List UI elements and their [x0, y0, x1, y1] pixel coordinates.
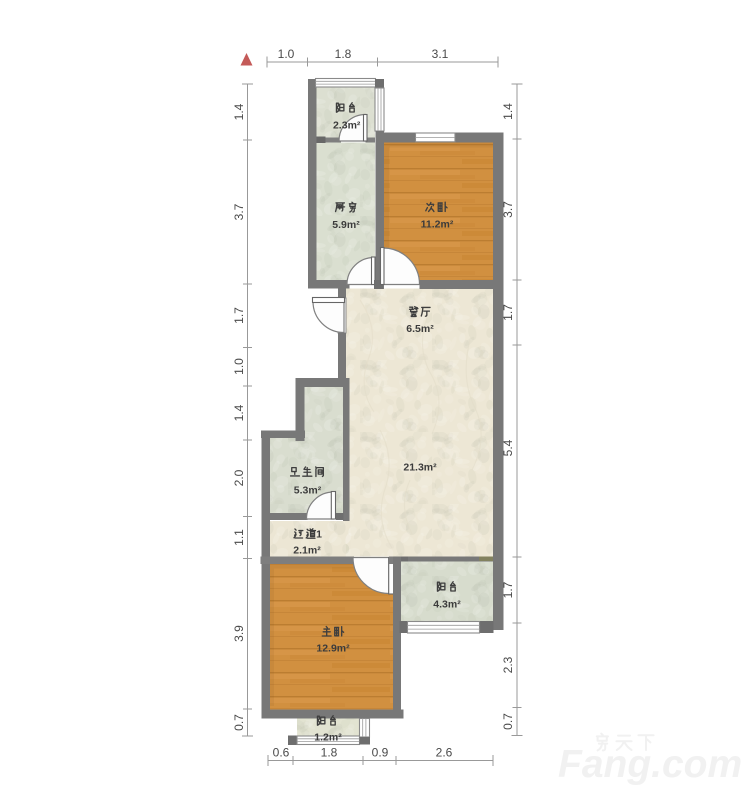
svg-text:5.4: 5.4: [501, 439, 515, 456]
svg-text:2.1m²: 2.1m²: [293, 545, 321, 557]
svg-text:1.4: 1.4: [232, 103, 246, 120]
svg-text:2.6: 2.6: [436, 746, 453, 760]
svg-text:5.3m²: 5.3m²: [294, 485, 322, 497]
svg-text:0.7: 0.7: [501, 713, 515, 730]
svg-text:2.0: 2.0: [232, 469, 246, 486]
svg-text:Fang.com: Fang.com: [558, 743, 742, 786]
svg-text:1.7: 1.7: [232, 307, 246, 324]
svg-text:11.2m²: 11.2m²: [421, 219, 454, 231]
svg-text:0.6: 0.6: [273, 746, 290, 760]
svg-text:5.9m²: 5.9m²: [332, 219, 360, 231]
svg-text:3.1: 3.1: [432, 47, 449, 61]
svg-text:1.8: 1.8: [335, 47, 352, 61]
svg-text:3.7: 3.7: [501, 201, 515, 218]
svg-text:1.4: 1.4: [232, 404, 246, 421]
svg-text:1.2m²: 1.2m²: [314, 732, 342, 744]
svg-text:12.9m²: 12.9m²: [316, 643, 350, 655]
svg-text:21.3m²: 21.3m²: [403, 462, 437, 474]
svg-text:1.0: 1.0: [278, 47, 295, 61]
svg-text:4.3m²: 4.3m²: [433, 599, 461, 611]
svg-text:1.4: 1.4: [501, 103, 515, 120]
svg-text:1.7: 1.7: [501, 304, 515, 321]
svg-text:1.8: 1.8: [321, 746, 338, 760]
svg-text:1.1: 1.1: [232, 529, 246, 546]
svg-text:1.0: 1.0: [232, 358, 246, 375]
svg-text:3.9: 3.9: [232, 625, 246, 642]
svg-text:1.7: 1.7: [501, 581, 515, 598]
svg-text:2.3: 2.3: [501, 656, 515, 673]
svg-text:0.9: 0.9: [372, 746, 389, 760]
svg-text:6.5m²: 6.5m²: [406, 323, 434, 335]
svg-text:0.7: 0.7: [232, 714, 246, 731]
svg-text:3.7: 3.7: [232, 203, 246, 220]
svg-text:1: 1: [316, 529, 322, 541]
svg-text:2.3m²: 2.3m²: [333, 120, 361, 132]
